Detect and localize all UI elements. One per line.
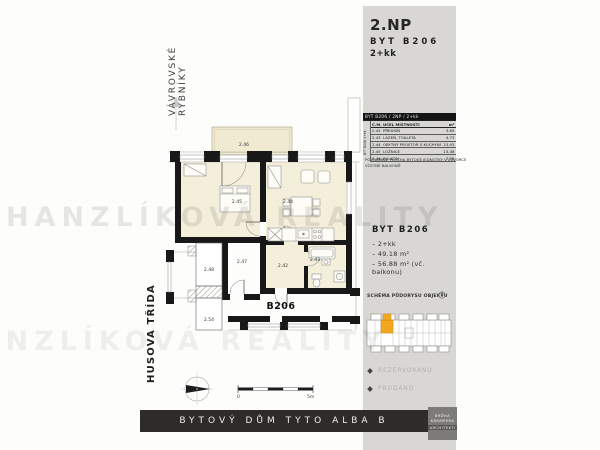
service-rooms <box>188 243 222 330</box>
room-label-bedroom: 2.45 <box>232 199 242 205</box>
room-number: 2.45 <box>371 149 383 154</box>
col-area-header: m² <box>442 122 457 127</box>
room-name: LOŽNICE <box>383 149 442 154</box>
col-number-header: Č.M. <box>371 122 383 127</box>
highlighted-unit <box>381 314 393 333</box>
table-note-line2: VČETNĚ BALKONŮ <box>365 163 400 168</box>
floor-title: 2.NP <box>370 16 412 34</box>
building-footprint-schema <box>365 304 454 362</box>
table-row: 2.44 OBYTNÝ PROSTOR S KUCHYNÍ 23.92 <box>371 142 456 149</box>
table-title-bar: BYT B206 / 2NP / 2+kk <box>363 113 456 120</box>
room-label-bath: 2.43 <box>310 257 320 263</box>
schema-title: SCHÉMA PŮDORYSU OBJEKTU <box>367 294 448 299</box>
logo-line: KRAMPERA <box>428 418 457 423</box>
room-label-neighbor2: 2.48 <box>204 267 214 273</box>
col-name-header: ÚČEL MÍSTNOSTI <box>383 122 442 127</box>
legend-item-reserved: REZERVOVÁNO <box>368 368 433 374</box>
table-row: 2.42 PŘEDSÍŇ 3.85 <box>371 128 456 135</box>
table-row: 2.43 LÁZEŇ, TOALETA 4.73 <box>371 135 456 142</box>
room-number: 2.42 <box>371 128 383 133</box>
street-label-husova-trida: HUSOVA TŘÍDA <box>146 283 157 383</box>
unit-number-label: B206 <box>266 301 295 312</box>
room-name: OBYTNÝ PROSTOR S KUCHYNÍ <box>383 142 442 147</box>
scale-bar: 0 5m <box>237 385 314 400</box>
summary-item-layout: – 2+kk <box>372 240 396 248</box>
table-header-row: Č.M. ÚČEL MÍSTNOSTI m² <box>371 121 456 128</box>
table-note-line1: POZNÁMKA: PLOCHA BYTOVÉ JEDNOTKY V ZÁVOR… <box>365 157 466 162</box>
room-label-living: 2.44 <box>283 199 293 205</box>
room-label-hall: 2.42 <box>278 263 288 269</box>
room-name: PŘEDSÍŇ <box>383 128 442 133</box>
legend-label: PRODÁNO <box>372 386 414 392</box>
room-area: 23.92 <box>442 142 457 147</box>
table-side-label-text: BYT B206 2+kk <box>363 130 367 155</box>
table-row: 2.45 LOŽNICE 13.48 <box>371 148 456 155</box>
scale-zero-label: 0 <box>237 394 240 400</box>
summary-item-area-balcony: – 56.88 m² (vč. balkonu) <box>372 260 456 276</box>
compass-icon <box>181 373 213 405</box>
room-label-balcony: 2.46 <box>239 142 249 148</box>
summary-title: BYT B206 <box>372 225 429 235</box>
room-name: LÁZEŇ, TOALETA <box>383 135 442 140</box>
summary-item-area: – 49.18 m² <box>372 250 409 258</box>
room-label-neighbor1: 2.47 <box>237 259 247 265</box>
info-panel: 2.NP BYT B206 2+kk BYT B206 / 2NP / 2+kk… <box>363 6 456 450</box>
room-area: 3.85 <box>442 128 457 133</box>
room-number: 2.44 <box>371 142 383 147</box>
street-top-line2: RYBNÍKY <box>178 16 188 116</box>
architect-logo: BRŮHA KRAMPERA ARCHITEKTI <box>428 407 457 440</box>
neighbor-balcony <box>348 98 360 152</box>
unit-title: BYT B206 <box>370 37 439 47</box>
room-area: 4.73 <box>442 135 457 140</box>
logo-line: ARCHITEKTI <box>428 425 457 430</box>
legend-item-sold: PRODÁNO <box>368 386 414 392</box>
schema-north-icon <box>437 290 447 300</box>
street-label-vavrovske-rybniky: VÁVROVSKÉ RYBNÍKY <box>168 16 188 116</box>
floor-plan-drawing: 2.46 2.45 2.44 2.42 2.43 2.47 2.48 2.54 … <box>0 0 600 450</box>
street-top-line1: VÁVROVSKÉ <box>168 16 178 116</box>
legend-label: REZERVOVÁNO <box>372 368 433 374</box>
scale-max-label: 5m <box>307 394 314 400</box>
table-side-label: BYT B206 2+kk <box>363 121 371 162</box>
layout-title: 2+kk <box>370 49 396 59</box>
room-area: 13.48 <box>442 149 457 154</box>
room-label-neighbor3: 2.54 <box>204 317 214 323</box>
footer-title-bar: BYTOVÝ DŮM TYTO ALBA B <box>140 410 428 432</box>
room-number: 2.43 <box>371 135 383 140</box>
room-table: BYT B206 2+kk Č.M. ÚČEL MÍSTNOSTI m² 2.4… <box>363 120 456 162</box>
